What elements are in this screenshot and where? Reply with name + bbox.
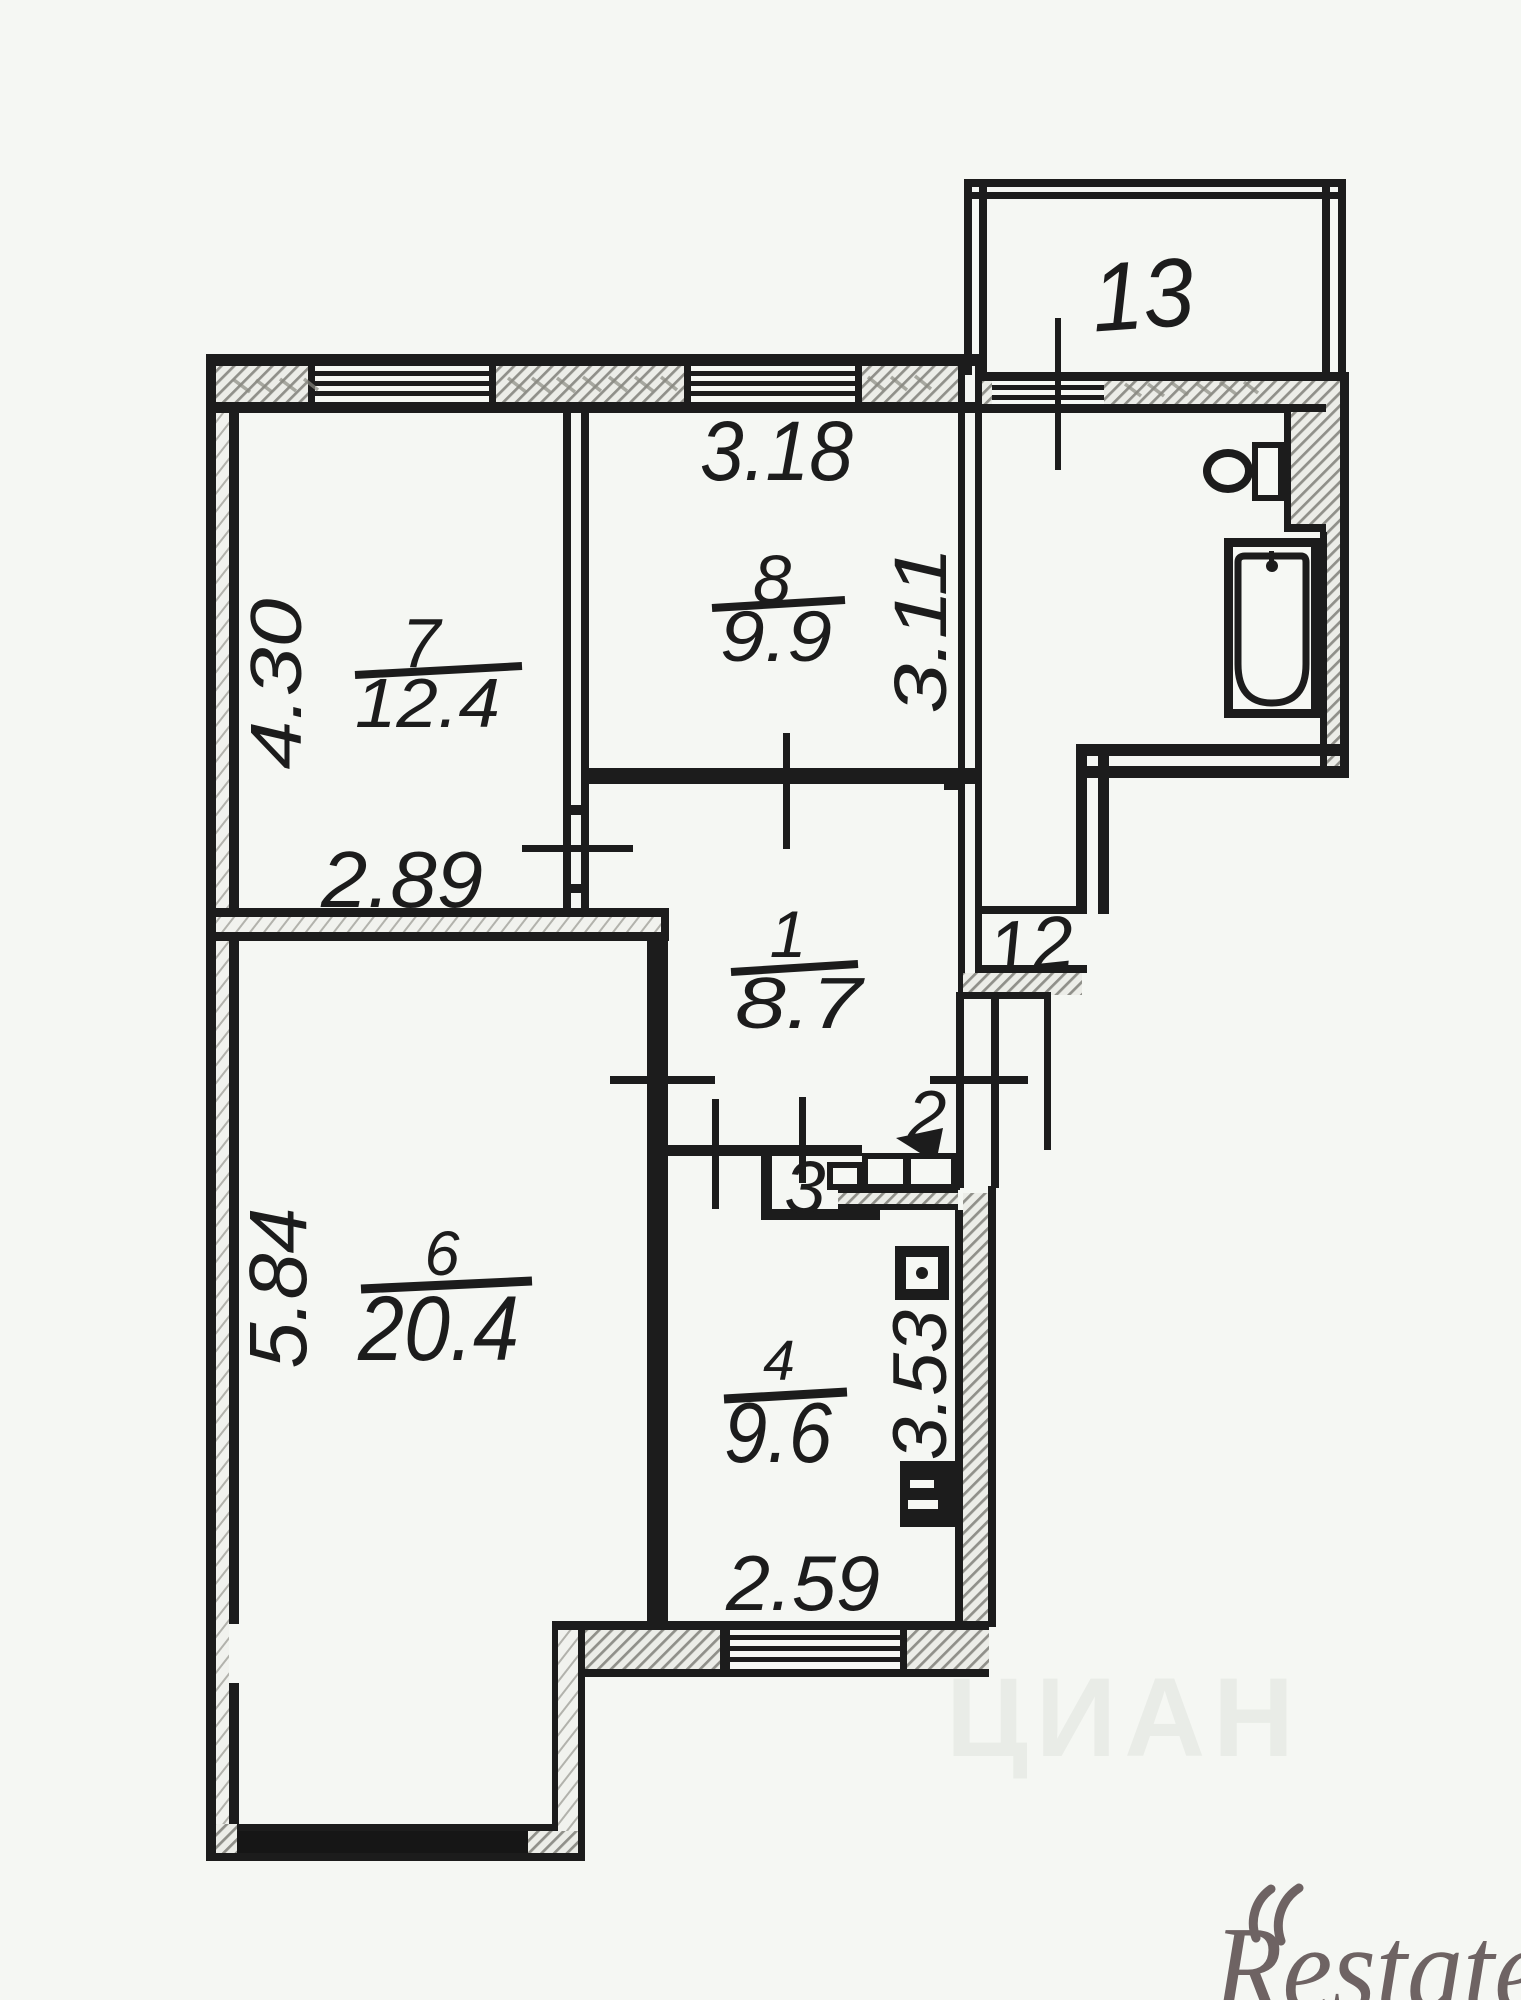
svg-text:9.9: 9.9 <box>720 598 832 677</box>
svg-text:3.53: 3.53 <box>878 1310 963 1460</box>
svg-text:3.11: 3.11 <box>879 547 962 714</box>
svg-text:Restate: Restate <box>1213 1902 1521 2000</box>
svg-text:2.89: 2.89 <box>320 835 483 924</box>
svg-text:12.4: 12.4 <box>355 664 500 742</box>
svg-text:3.18: 3.18 <box>700 404 853 498</box>
svg-text:4: 4 <box>763 1329 795 1393</box>
svg-text:20.4: 20.4 <box>357 1278 519 1380</box>
svg-text:13: 13 <box>1088 237 1197 353</box>
svg-text:ЦИАН: ЦИАН <box>946 1655 1302 1780</box>
svg-text:4.30: 4.30 <box>237 599 317 770</box>
svg-text:1: 1 <box>770 897 807 971</box>
svg-text:2: 2 <box>907 1076 947 1154</box>
svg-text:2.59: 2.59 <box>725 1539 880 1627</box>
svg-text:3: 3 <box>784 1146 825 1229</box>
svg-text:9.6: 9.6 <box>724 1386 833 1481</box>
svg-text:5.84: 5.84 <box>233 1208 324 1369</box>
svg-text:8.7: 8.7 <box>735 964 866 1044</box>
